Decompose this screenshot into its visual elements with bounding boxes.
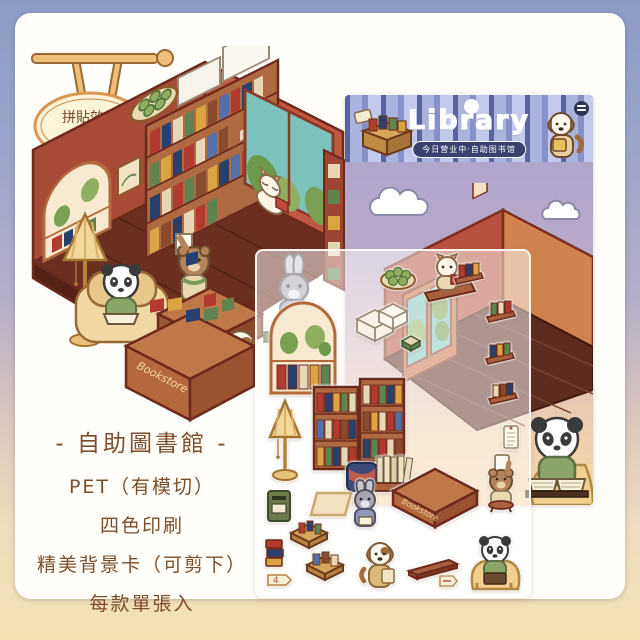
open-box-books-sticker xyxy=(303,549,347,581)
wall-shelf-sticker xyxy=(484,341,516,367)
counter-sticker: Bookstore xyxy=(385,463,485,529)
dog-sticker xyxy=(359,541,401,591)
status-pill: 今日营业中·自助图书馆 xyxy=(412,141,526,158)
product-feature-sheet-count: 每款單張入 xyxy=(22,589,262,616)
product-feature-pet: PET（有模切） xyxy=(22,472,262,499)
product-photo: 拼貼效果 參考圖 xyxy=(0,0,640,640)
product-feature-background-card: 精美背景卡（可剪下） xyxy=(22,550,262,577)
dog-mascot-icon xyxy=(539,111,587,161)
book-box-icon xyxy=(353,109,415,159)
rabbit-sticker xyxy=(347,479,383,529)
wall-shelf-sticker xyxy=(487,381,519,407)
sticker-sheet: Bookstore 4 xyxy=(255,249,531,598)
wall-shelf-sticker xyxy=(453,261,485,287)
packaging-header: Library 今日营业中·自助图书馆 xyxy=(345,95,593,162)
price-tag-number: 4 xyxy=(273,576,279,586)
floor-lamp-sticker xyxy=(265,397,305,483)
wall-frame xyxy=(473,183,487,199)
panda-armchair-sticker xyxy=(467,533,521,591)
book-stack-sticker xyxy=(263,537,287,569)
product-info: - 自助圖書館 - PET（有模切） 四色印刷 精美背景卡（可剪下） 每款單張入 xyxy=(22,424,262,628)
green-book-sticker xyxy=(399,333,423,353)
wall-shelf-sticker xyxy=(485,299,517,325)
price-tag-sticker: 4 xyxy=(265,571,293,589)
small-tag-sticker xyxy=(437,573,459,589)
book-crate-sticker xyxy=(287,519,331,549)
product-feature-print: 四色印刷 xyxy=(22,511,262,538)
product-title: - 自助圖書館 - xyxy=(22,424,262,458)
bear-on-stool-sticker xyxy=(479,453,525,513)
succulent-basket-sticker xyxy=(379,263,417,291)
note-paper-sticker xyxy=(501,423,521,451)
